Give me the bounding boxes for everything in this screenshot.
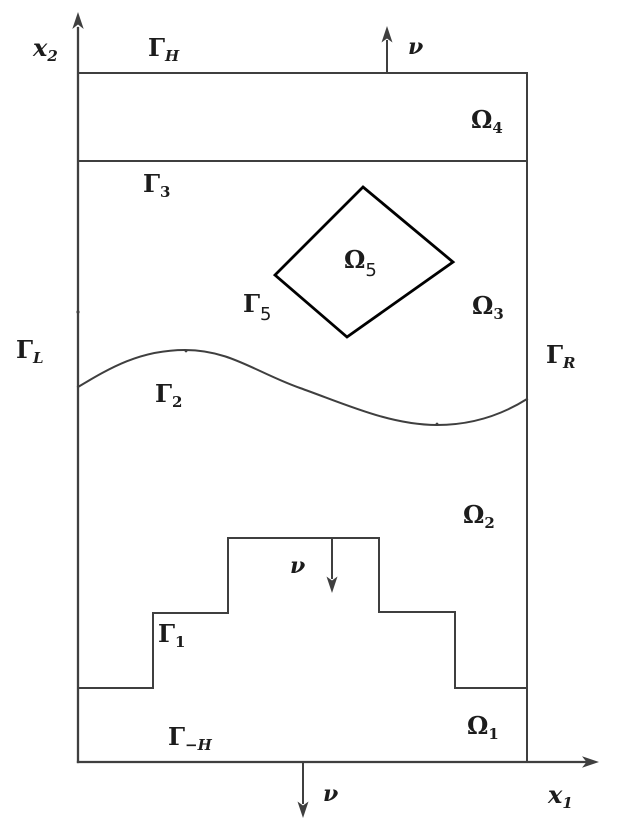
x2-axis-label: x2 [32, 33, 58, 65]
gamma-minus-H-label: Γ−H [168, 722, 213, 754]
nu-bottom-label: ν [323, 781, 338, 807]
omega-2-label: Ω2 [463, 500, 495, 532]
nu-top-label: ν [408, 34, 423, 60]
gamma-L-label: ΓL [16, 335, 44, 367]
interface-gamma-2-wave [78, 350, 527, 425]
axis-dot [76, 310, 79, 313]
wave-trough-dot [436, 423, 439, 426]
nu-middle-label: ν [290, 553, 305, 579]
x2-axis-arrowhead-icon [72, 12, 83, 29]
nu-arrow-bottom [298, 762, 309, 818]
gamma-1-label: Γ1 [158, 619, 185, 651]
gamma-5-label: Γ5 [243, 289, 272, 325]
nu-arrow-top [382, 26, 393, 73]
gamma-2-label: Γ2 [155, 379, 182, 411]
domain-decomposition-diagram: x2 ΓH ν Ω4 Γ3 Ω5 Γ5 Ω3 ΓL ΓR Γ2 Ω2 ν Γ1 … [0, 0, 617, 830]
omega-1-label: Ω1 [467, 711, 499, 743]
gamma-H-label: ΓH [148, 33, 180, 65]
x1-axis-label: x1 [547, 780, 573, 812]
gamma-3-label: Γ3 [143, 169, 170, 201]
omega-3-label: Ω3 [472, 291, 504, 323]
gamma-R-label: ΓR [546, 340, 576, 372]
nu-arrow-middle [327, 538, 338, 593]
omega-5-label: Ω5 [344, 245, 377, 281]
x1-axis [78, 756, 599, 767]
diagram-canvas: x2 ΓH ν Ω4 Γ3 Ω5 Γ5 Ω3 ΓL ΓR Γ2 Ω2 ν Γ1 … [0, 0, 617, 830]
wave-crest-dot [185, 350, 188, 353]
omega-4-label: Ω4 [471, 105, 503, 137]
